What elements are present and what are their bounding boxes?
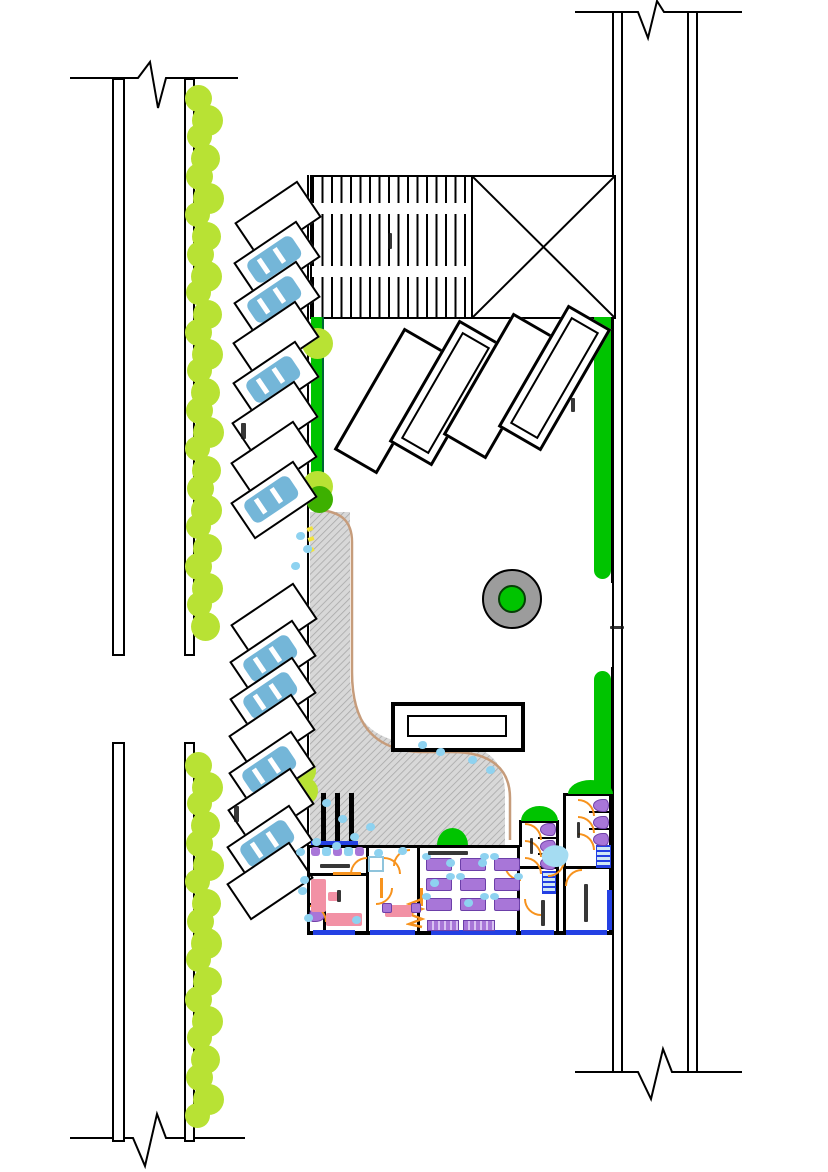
classroom-desk [494, 878, 520, 891]
car-windshield [256, 378, 270, 395]
classroom-long-desk [427, 920, 459, 931]
car-windshield [252, 768, 266, 785]
car-windshield [273, 247, 287, 264]
annotation-mark [530, 838, 533, 854]
classroom-desk [494, 898, 520, 911]
annotation-mark [241, 423, 246, 439]
road-break-bottom-right [575, 1049, 742, 1099]
scatter-dot [300, 876, 309, 884]
car-windshield [272, 367, 286, 384]
toilet-fixture [593, 799, 609, 812]
scatter-dot [296, 532, 305, 540]
walkway-edge-line [320, 510, 510, 840]
toilet-fixture [593, 816, 609, 829]
door-swing-arc [578, 833, 595, 850]
reception-chair [355, 847, 364, 856]
window-strip [566, 930, 607, 935]
classroom-chair [490, 853, 499, 860]
left-road-lane-line [112, 742, 125, 1142]
car-windshield [269, 683, 283, 700]
road-break-top-right [575, 1, 742, 38]
car-windshield [268, 757, 282, 774]
reception-chair [344, 847, 353, 856]
office-chair [382, 903, 392, 913]
scatter-dot [418, 741, 427, 749]
door-swing-arc [578, 816, 595, 833]
scatter-dot [298, 887, 307, 895]
car-windshield [266, 831, 280, 848]
site-plan-canvas [0, 0, 828, 1172]
office-chair [411, 903, 421, 913]
scatter-dot [366, 823, 375, 831]
car-windshield [269, 646, 283, 663]
annotation-mark [577, 822, 580, 838]
site-boundary-east-lower [611, 667, 614, 793]
classroom-chair [446, 873, 455, 880]
scatter-dot [303, 545, 312, 553]
classroom-desk [460, 878, 486, 891]
classroom-long-desk [463, 920, 495, 931]
right-road-curb-line [621, 12, 623, 1072]
window-strip [607, 890, 612, 930]
right-road-curb-line [687, 12, 689, 1072]
annotation-mark [584, 884, 588, 922]
car-windshield [253, 694, 267, 711]
annotation-mark [388, 233, 392, 249]
green-strip-east-upper [594, 317, 611, 579]
scatter-dot [478, 859, 487, 867]
scatter-dot [464, 899, 473, 907]
crossed-box-block [471, 175, 616, 319]
annotation-mark [337, 890, 341, 902]
site-boundary-east-upper [611, 315, 614, 583]
reflecting-pool [391, 702, 525, 752]
classroom-chair [422, 893, 431, 900]
classroom-chair [480, 893, 489, 900]
toilet-fixture [540, 823, 556, 836]
scatter-dot [468, 756, 477, 764]
car-windshield [257, 258, 271, 275]
scatter-dot [312, 838, 321, 846]
toilet-fixture [593, 833, 609, 846]
door-leaf [333, 872, 361, 875]
classroom-desk [494, 858, 520, 871]
hatched-building-block [310, 175, 477, 319]
car-windshield [250, 842, 264, 859]
door-swing-arc [525, 840, 542, 857]
classroom-chair [456, 873, 465, 880]
annotation-mark [428, 851, 468, 855]
cross-diagonals [473, 177, 614, 317]
yellow-marker [306, 526, 313, 532]
road-break-top-left [70, 62, 238, 108]
left-road-lane-line [112, 78, 125, 656]
street-tree [191, 612, 220, 641]
door-leaf [380, 878, 383, 898]
car-windshield [257, 298, 271, 315]
right-road-curb-line [696, 12, 698, 1072]
reception-chair [322, 847, 331, 856]
window-strip [370, 930, 415, 935]
reception-chair [311, 847, 320, 856]
scatter-dot [446, 859, 455, 867]
planter-tree [498, 585, 526, 613]
street-tree [185, 1103, 210, 1128]
car-windshield [273, 287, 287, 304]
scatter-dot [352, 916, 361, 924]
window-strip [521, 930, 554, 935]
scatter-dot [291, 562, 300, 570]
reception-desk [311, 879, 326, 912]
circular-planter [482, 569, 542, 629]
window-strip [313, 930, 355, 935]
site-boundary-west [307, 175, 309, 845]
column-box [368, 856, 384, 872]
annotation-mark [571, 398, 575, 412]
classroom-chair [490, 893, 499, 900]
scatter-dot [430, 879, 439, 887]
scatter-dot [296, 848, 305, 856]
hatch-band [312, 266, 475, 277]
entrance-gap-dash [610, 626, 624, 629]
car-windshield [254, 498, 268, 515]
yellow-marker [307, 536, 314, 542]
annotation-mark [234, 806, 239, 822]
car-windshield [270, 487, 284, 504]
hatch-band [312, 203, 475, 214]
door-swing-arc [525, 823, 542, 840]
sink-counter [596, 845, 611, 868]
scatter-dot [350, 833, 359, 841]
car-windshield [253, 657, 267, 674]
entry-bush [437, 828, 468, 845]
towerE-left [519, 820, 522, 847]
green-strip-east-lower [594, 671, 611, 789]
green-roof-dome [521, 806, 558, 821]
door-swing-arc [524, 899, 541, 916]
classroom-desk [426, 898, 452, 911]
scatter-dot [304, 914, 313, 922]
classroom-chair [514, 873, 523, 880]
scatter-dot [338, 815, 347, 823]
scatter-dot [322, 799, 331, 807]
scatter-dot [486, 766, 495, 774]
pool-inner-rim [407, 715, 507, 737]
door-swing-arc [578, 799, 595, 816]
towerE-right [556, 820, 559, 932]
annotation-mark [541, 900, 545, 926]
door-swing-arc [565, 869, 582, 886]
scatter-dot [398, 847, 407, 855]
scatter-dot [436, 748, 445, 756]
scatter-dot [374, 849, 383, 857]
door-swing-arc [525, 857, 542, 874]
road-break-bottom-left [70, 1114, 245, 1166]
annotation-mark [320, 864, 350, 868]
scatter-dot [332, 842, 341, 850]
